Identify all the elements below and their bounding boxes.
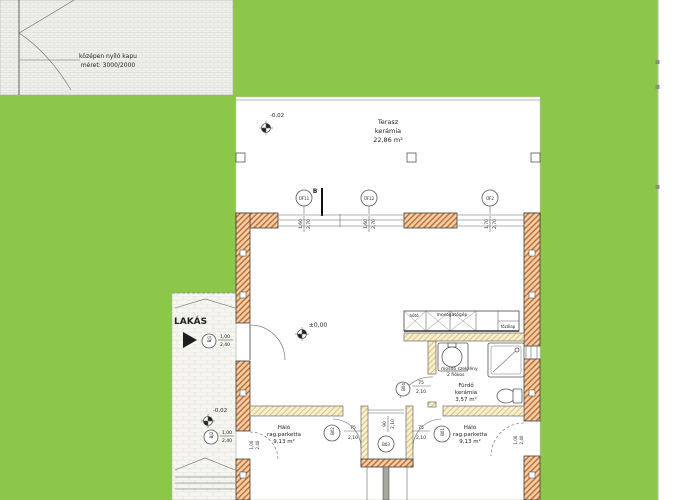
svg-text:2,10: 2,10 xyxy=(416,389,426,395)
svg-text:2,10: 2,10 xyxy=(348,435,358,441)
gate-label-line2: méret: 3000/2000 xyxy=(81,62,136,69)
gate-label-line1: középen nyíló kapu xyxy=(79,53,137,60)
svg-text:2,40: 2,40 xyxy=(220,342,230,348)
svg-text:1,00: 1,00 xyxy=(249,440,254,449)
terrace-column-middle xyxy=(407,153,416,162)
terrace-column-right xyxy=(531,153,540,162)
site-plan-drawing: középen nyíló kapu méret: 3000/2000 LAKÁ… xyxy=(0,0,700,500)
terrace-finish: kerámia xyxy=(375,127,401,135)
toilet xyxy=(497,389,522,403)
bedroom-right-area: 9,13 m² xyxy=(459,438,481,445)
svg-text:2,10: 2,10 xyxy=(416,435,426,441)
bedroom-left-area: 9,13 m² xyxy=(273,438,295,445)
gate-paved-area: középen nyíló kapu méret: 3000/2000 xyxy=(0,0,233,95)
svg-text:B: B xyxy=(313,188,318,195)
svg-text:-0,02: -0,02 xyxy=(270,113,284,119)
vanity-label-line2: 2 fiókos xyxy=(447,371,465,378)
terrace-name: Terasz xyxy=(377,118,399,126)
vanity-label-line1: mosdó szekrény xyxy=(441,365,478,372)
svg-text:75: 75 xyxy=(418,425,424,431)
floorplan-canvas: középen nyíló kapu méret: 3000/2000 LAKÁ… xyxy=(0,0,700,500)
apartment-label: LAKÁS xyxy=(174,315,207,327)
svg-text:2,70: 2,70 xyxy=(306,219,312,229)
bedroom-right-name: Háló xyxy=(464,424,477,431)
svg-text:2,40: 2,40 xyxy=(222,438,232,444)
svg-text:1,70: 1,70 xyxy=(484,219,490,229)
terrace-area: 22,86 m² xyxy=(373,136,403,144)
fridge-label: hűtő xyxy=(409,313,419,318)
bathroom-area: 3,57 m² xyxy=(455,396,477,403)
svg-text:90: 90 xyxy=(382,421,388,427)
vestibule-bottom-wall xyxy=(361,459,413,467)
bathroom-name: Fürdő xyxy=(458,383,474,389)
svg-text:±0,00: ±0,00 xyxy=(309,322,328,329)
svg-text:1,00: 1,00 xyxy=(222,430,232,436)
svg-text:1,00: 1,00 xyxy=(220,334,230,340)
svg-text:2,40: 2,40 xyxy=(519,435,524,444)
svg-text:B02: B02 xyxy=(330,427,335,435)
svg-text:1,60: 1,60 xyxy=(363,219,369,229)
svg-text:BJ2: BJ2 xyxy=(209,431,214,438)
kitchen-counter: hűtő mosogatógép főzőlap xyxy=(404,311,519,331)
svg-text:B03: B03 xyxy=(382,442,390,447)
svg-text:75: 75 xyxy=(350,425,356,431)
cooktop-label: főzőlap xyxy=(501,324,516,329)
entry-walkway: LAKÁS BJ1 1,00 2,40 BJ2 1,00 2,40 -0,02 xyxy=(172,293,236,500)
bedroom-right-finish: rag.parketta xyxy=(453,432,487,438)
svg-text:ÜF2: ÜF2 xyxy=(486,196,494,201)
bedroom-left-finish: rag.parketta xyxy=(267,432,301,438)
svg-text:75: 75 xyxy=(418,380,424,386)
svg-text:2,10: 2,10 xyxy=(390,419,396,429)
svg-text:2,40: 2,40 xyxy=(255,440,260,449)
svg-text:1,60: 1,60 xyxy=(298,219,304,229)
svg-text:-0,02: -0,02 xyxy=(213,408,227,414)
svg-text:B04: B04 xyxy=(401,383,406,391)
svg-text:2,70: 2,70 xyxy=(492,219,498,229)
bedroom-left-name: Háló xyxy=(278,424,291,431)
shower xyxy=(488,343,524,377)
svg-text:BJ1: BJ1 xyxy=(207,335,212,342)
bathroom-finish: kerámia xyxy=(455,389,477,396)
svg-text:1,00: 1,00 xyxy=(513,435,518,444)
svg-text:2,70: 2,70 xyxy=(371,219,377,229)
svg-text:ÜF12: ÜF12 xyxy=(364,196,375,201)
svg-text:B01: B01 xyxy=(440,428,445,436)
terrace-column-left xyxy=(236,153,245,162)
svg-text:ÜF11: ÜF11 xyxy=(299,196,310,201)
dishwasher-label: mosogatógép xyxy=(437,311,468,318)
